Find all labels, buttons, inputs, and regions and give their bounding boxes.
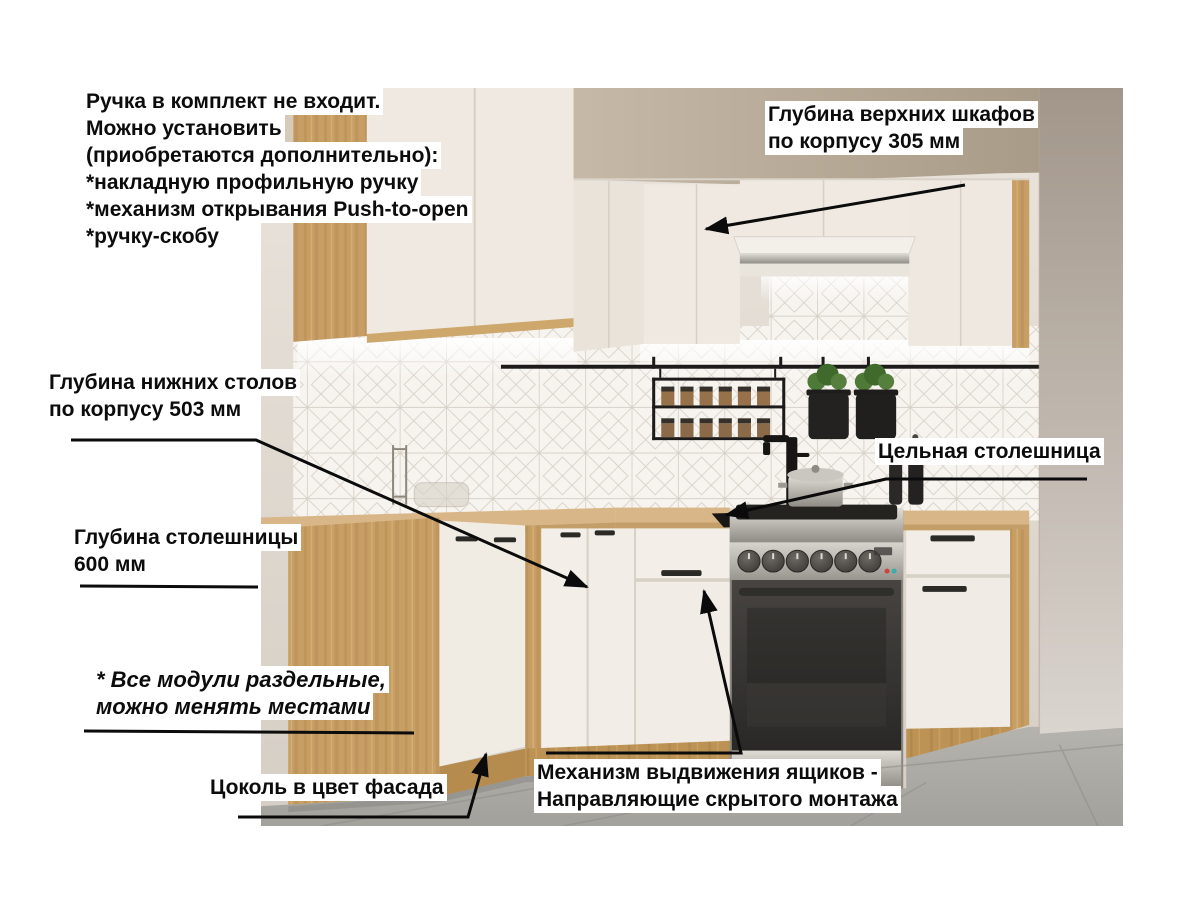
handle-note-line: *ручку-скобу (83, 223, 222, 250)
sink-cabinet-door-right (589, 528, 634, 748)
cooker-hood (734, 237, 915, 277)
countertop-right-edge (895, 524, 1029, 530)
drawer-gap (636, 579, 730, 581)
hood-body (740, 264, 909, 277)
corner-cabinet-front (439, 520, 525, 766)
indicator-light (885, 569, 890, 574)
cooktop (736, 505, 897, 520)
drawer-gap (906, 575, 1010, 577)
countertop-mid-edge (616, 522, 730, 528)
drawer-mechanism-line: Направляющие скрытого монтажа (534, 786, 901, 813)
solid-countertop-text: Цельная столешница (875, 438, 1104, 465)
upper-cabinet-depth-label: Глубина верхних шкафов по корпусу 305 мм (765, 101, 1038, 155)
cabinet-door (636, 582, 730, 749)
door-gap (634, 528, 636, 748)
modules-note-label: * Все модули раздельные, можно менять ме… (93, 666, 389, 720)
handle-note-label: Ручка в комплект не входит. Можно устано… (83, 88, 472, 250)
handle-note-line: *механизм открывания Push-to-open (83, 196, 472, 223)
door-gap (587, 528, 589, 748)
base-cabinet-depth-label: Глубина нижних столов по корпусу 503 мм (46, 369, 300, 423)
base-wood-side-panel (288, 518, 439, 807)
hood-steel-strip (740, 254, 909, 264)
countertop-depth-line: Глубина столешницы (71, 524, 301, 551)
drawer-handle (930, 535, 974, 541)
upper-wood-edge-right (1012, 179, 1029, 348)
glass-bowl (414, 483, 468, 507)
countertop-depth-label: Глубина столешницы 600 мм (71, 524, 301, 578)
countertop-depth-line: 600 мм (71, 551, 149, 578)
door-handle (922, 586, 966, 592)
sink-cabinet-door-left (541, 528, 586, 748)
modules-note-line: можно менять местами (93, 693, 373, 720)
countertop-right-top (895, 511, 1029, 525)
wood-side-edge (1010, 528, 1029, 730)
upper-depth-line: по корпусу 305 мм (765, 128, 963, 155)
cabinet-door (906, 578, 1010, 729)
handle-note-line: (приобретаются дополнительно): (83, 142, 441, 169)
base-depth-line: по корпусу 503 мм (46, 396, 244, 423)
spice-shelf (652, 369, 785, 440)
wood-stile (525, 525, 541, 748)
door-handle (494, 537, 516, 542)
handle-note-line: Ручка в комплект не входит. (83, 88, 383, 115)
upper-depth-line: Глубина верхних шкафов (765, 101, 1038, 128)
stove-display (874, 547, 892, 555)
plinth-note-text: Цоколь в цвет фасада (207, 774, 447, 801)
oven-reflection (747, 683, 886, 727)
modules-note-line: * Все модули раздельные, (93, 666, 389, 693)
oven-handle (739, 588, 894, 596)
drawer-handle (661, 570, 701, 576)
annotated-kitchen-figure: Ручка в комплект не входит. Можно устано… (0, 0, 1201, 900)
base-depth-line: Глубина нижних столов (46, 369, 300, 396)
underline-countertop-depth (80, 586, 258, 587)
hood-visor (734, 237, 915, 254)
solid-countertop-label: Цельная столешница (875, 438, 1104, 465)
right-base-cabinet (906, 528, 1029, 758)
handle-note-line: *накладную профильную ручку (83, 169, 421, 196)
plinth-note-label: Цоколь в цвет фасада (207, 774, 447, 801)
left-led-glow (297, 338, 577, 378)
handle-note-line: Можно установить (83, 115, 285, 142)
hood-led-glow (761, 276, 916, 302)
countertop-mid-top (616, 508, 730, 523)
door-handle (456, 536, 478, 541)
door-handle (595, 530, 615, 535)
drawer-mechanism-line: Механизм выдвижения ящиков - (534, 759, 881, 786)
right-wall (1039, 88, 1123, 734)
drawer-mechanism-label: Механизм выдвижения ящиков - Направляющи… (534, 759, 901, 813)
indicator-light (892, 569, 897, 574)
door-handle (560, 532, 580, 537)
upper-back-doors-left (644, 184, 740, 344)
stove (730, 465, 903, 790)
